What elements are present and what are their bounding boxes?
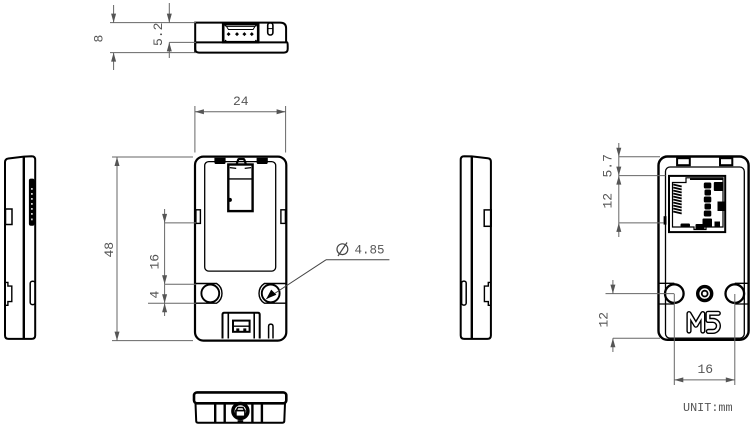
svg-text:4.85: 4.85 <box>355 244 385 258</box>
svg-text:4: 4 <box>148 291 163 299</box>
svg-text:5.7: 5.7 <box>601 154 616 177</box>
svg-text:UNIT:mm: UNIT:mm <box>683 401 733 415</box>
svg-text:24: 24 <box>233 94 249 109</box>
svg-text:12: 12 <box>597 312 612 328</box>
svg-text:5.2: 5.2 <box>151 23 166 46</box>
svg-text:48: 48 <box>102 242 117 258</box>
svg-text:16: 16 <box>698 362 714 377</box>
svg-text:8: 8 <box>92 35 107 43</box>
svg-text:12: 12 <box>601 193 616 209</box>
svg-text:16: 16 <box>148 254 163 270</box>
